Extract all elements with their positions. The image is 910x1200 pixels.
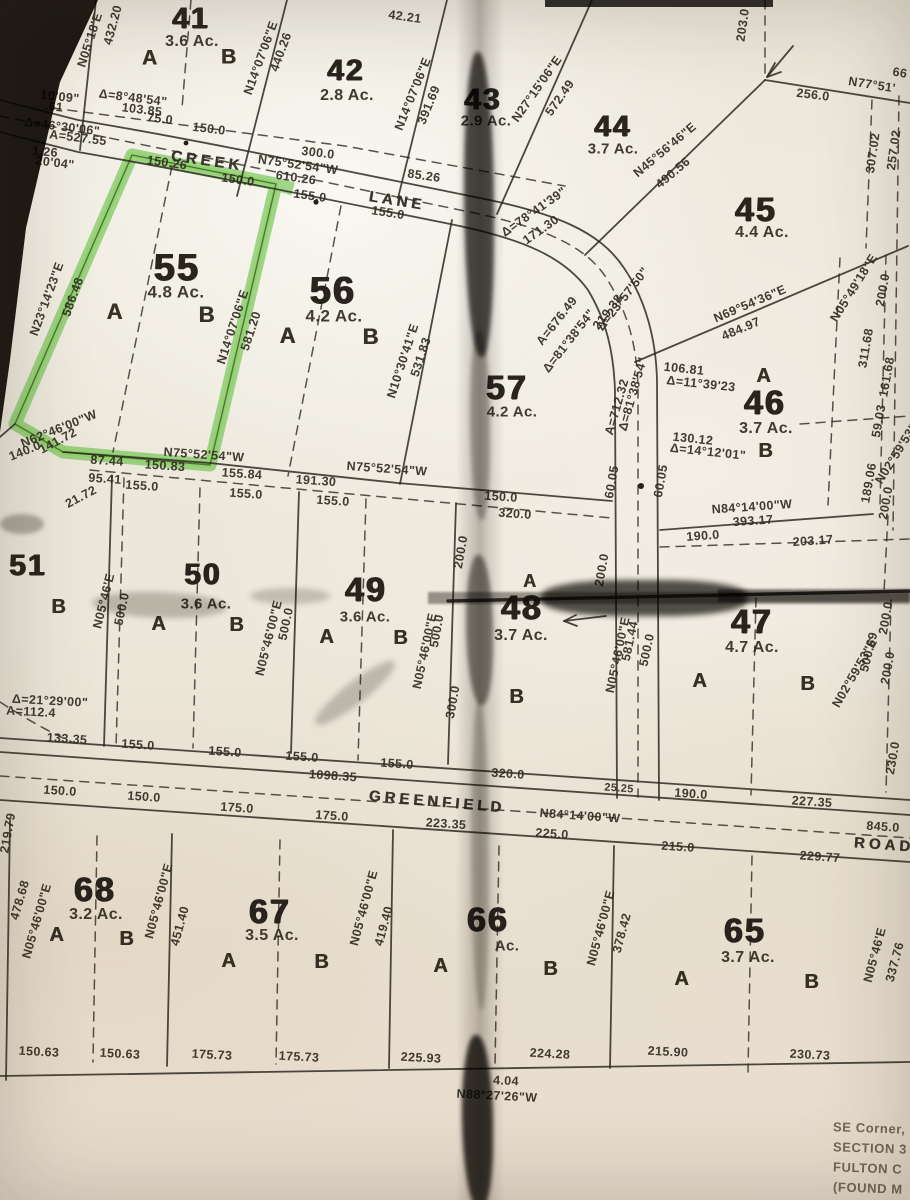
map-label: 845.0	[866, 820, 900, 835]
map-label: N84°14'00"W	[539, 807, 621, 825]
map-label: 200.0	[879, 651, 897, 686]
map-label: 3.7 Ac.	[739, 421, 793, 437]
lot-section-letter: B	[804, 972, 819, 992]
map-label: 3.7 Ac.	[494, 628, 548, 644]
map-label: 190.0	[686, 529, 720, 544]
lot-number-43: 43	[464, 85, 501, 115]
map-label: 4.4 Ac.	[735, 225, 789, 241]
map-label: 155.0	[285, 750, 319, 765]
lot-section-letter: A	[692, 671, 707, 691]
map-label: 175.73	[278, 1050, 319, 1065]
lot-number-51: 51	[9, 551, 46, 581]
map-label: 337.76	[884, 941, 907, 983]
lot-section-letter: A	[142, 48, 158, 69]
map-label: 225.0	[535, 827, 569, 842]
map-label: 42.21	[388, 8, 423, 25]
map-label: 230.73	[789, 1048, 830, 1063]
map-label: N88°27'26"W	[456, 1088, 537, 1105]
lot-number-41: 41	[172, 4, 209, 34]
map-label: 150.0	[221, 171, 256, 188]
map-label: 155.84	[221, 466, 262, 481]
lot-number-47: 47	[731, 605, 773, 639]
lot-number-42: 42	[327, 56, 364, 86]
map-label: 227.35	[791, 794, 832, 809]
plat-map-photo: N05°18'E432.20413.6 Ac.ABN14°07'06"E440.…	[0, 0, 910, 1200]
map-label: 203.17	[792, 533, 833, 548]
map-label: 155.0	[380, 757, 414, 772]
lot-section-letter: B	[363, 326, 380, 348]
map-label: 4.8 Ac.	[148, 284, 205, 301]
map-label: 257.02	[885, 129, 903, 171]
labels-layer: N05°18'E432.20413.6 Ac.ABN14°07'06"E440.…	[0, 0, 910, 1200]
map-label: 150.0	[192, 121, 227, 137]
map-label: 3.7 Ac.	[588, 142, 639, 157]
map-label: 189.06	[859, 462, 878, 504]
map-label: 311.68	[856, 327, 875, 369]
lot-section-letter: B	[119, 929, 134, 949]
map-label: 150.0	[43, 784, 77, 799]
map-label: 200.0	[877, 601, 895, 636]
lot-section-letter: B	[314, 952, 329, 972]
map-label: 320.0	[498, 507, 532, 522]
map-label: N05°46'00"E	[143, 862, 175, 940]
map-label: N05°49'18"E	[828, 252, 880, 324]
map-label: 3.6 Ac.	[340, 610, 391, 625]
map-label: 75.0	[146, 111, 173, 127]
map-label: 307.02	[864, 132, 882, 174]
lot-section-letter: A	[280, 325, 297, 347]
lot-number-68: 68	[74, 873, 116, 907]
map-label: 150.0	[484, 490, 518, 505]
map-label: 223.35	[425, 816, 466, 831]
map-label: 150.0	[127, 790, 161, 805]
lot-section-letter: B	[51, 597, 66, 617]
map-label: 320.0	[491, 767, 525, 782]
map-label: 3.5 Ac.	[245, 928, 299, 944]
map-label: 21.72	[63, 484, 98, 511]
map-label: 500.69	[858, 631, 880, 673]
lot-section-letter: A	[433, 956, 448, 976]
map-label: 451.40	[169, 905, 192, 947]
map-label: Δ=14°12'01"	[669, 442, 746, 462]
lot-section-letter: B	[229, 615, 244, 635]
map-label: 200.0	[877, 486, 895, 521]
map-label: .61	[44, 100, 64, 114]
corner-note-line: SE Corner,	[833, 1120, 906, 1136]
map-label: 150.63	[18, 1045, 59, 1060]
map-label: 161.68	[877, 356, 896, 398]
map-label: 229.77	[799, 849, 840, 864]
lot-number-65: 65	[724, 914, 766, 948]
corner-note-line: SECTION 3	[833, 1140, 907, 1156]
map-label: 300.0	[444, 685, 462, 720]
map-label: 175.0	[315, 809, 349, 824]
map-label: 378.42	[611, 912, 634, 954]
lot-section-letter: B	[393, 628, 408, 648]
map-label: Δ=11°39'23	[666, 374, 736, 394]
map-label: 200.0	[593, 553, 611, 588]
map-label: 256.0	[796, 87, 831, 103]
map-label: 4.2 Ac.	[487, 405, 538, 420]
map-label: 60.05	[652, 464, 670, 499]
lot-section-letter: A	[756, 366, 771, 386]
map-label: 85.26	[407, 167, 442, 184]
map-label: 4.7 Ac.	[725, 640, 779, 656]
map-label: 190.0	[674, 787, 708, 802]
map-label: 155.0	[208, 745, 242, 760]
lot-number-55: 55	[154, 249, 200, 287]
map-label: 66	[892, 66, 908, 81]
map-label: 150.63	[99, 1047, 140, 1062]
map-label: 191.30	[295, 473, 336, 488]
map-label: 60.05	[603, 465, 621, 500]
corner-note-line: FULTON C	[833, 1160, 903, 1175]
lot-section-letter: B	[221, 47, 237, 68]
lot-number-66: 66	[467, 903, 509, 937]
lot-section-letter: A	[107, 301, 124, 323]
map-label: 215.0	[661, 840, 695, 855]
lot-section-letter: A	[523, 572, 537, 590]
lot-section-letter: A	[319, 627, 334, 647]
map-label: 224.28	[529, 1047, 570, 1062]
lot-section-letter: A	[151, 614, 166, 634]
map-label: 155.0	[316, 494, 350, 509]
map-label: 3.7 Ac.	[721, 950, 775, 966]
lot-section-letter: B	[543, 959, 558, 979]
corner-note-line: (FOUND M	[833, 1180, 903, 1195]
map-label: 432.20	[102, 4, 125, 46]
map-label: 20'04"	[35, 154, 75, 171]
map-label: 155.0	[371, 204, 406, 222]
lot-section-letter: B	[800, 674, 815, 694]
map-label: 4.04	[493, 1074, 520, 1088]
map-label: 500.0	[112, 591, 131, 626]
map-label: 219.79	[0, 812, 18, 854]
lot-section-letter: A	[221, 951, 236, 971]
lot-number-48: 48	[501, 591, 543, 625]
map-label: 225.93	[400, 1051, 441, 1066]
map-label: N75°52'54"W	[346, 460, 428, 478]
lot-number-49: 49	[345, 573, 387, 607]
map-label: N23°14'23"E	[28, 261, 66, 338]
map-label: 2.8 Ac.	[320, 88, 374, 104]
map-label: N05°46'00"E	[411, 612, 439, 690]
map-label: Ac.	[495, 939, 520, 954]
map-label: 393.17	[732, 513, 773, 528]
map-label: 175.73	[191, 1048, 232, 1063]
map-label: 478.68	[8, 879, 31, 922]
map-label: 419.40	[373, 905, 396, 947]
street-name-greenfield: GREENFIELD	[368, 789, 505, 816]
lot-section-letter: B	[509, 687, 524, 707]
lot-number-57: 57	[486, 371, 528, 405]
map-label: 59.03	[870, 404, 888, 439]
map-label: 155.0	[121, 738, 155, 753]
map-label: 155.0	[293, 187, 328, 204]
map-label: 203.0	[734, 8, 751, 43]
street-name-road: ROAD	[853, 835, 910, 854]
lot-number-45: 45	[735, 193, 777, 227]
map-label: 155.0	[229, 487, 263, 502]
map-label: 1098.35	[309, 768, 358, 784]
map-label: 140.0	[7, 439, 43, 463]
map-label: 500.0	[637, 632, 656, 667]
map-label: 3.6 Ac.	[181, 597, 232, 612]
map-label: A=112.4	[6, 704, 56, 719]
map-label: 3.6 Ac.	[165, 34, 219, 50]
map-label: 25.25	[604, 782, 634, 795]
lot-number-67: 67	[249, 895, 291, 929]
lot-number-44: 44	[594, 112, 631, 142]
map-label: 133.35	[46, 731, 87, 746]
lot-section-letter: A	[674, 969, 689, 989]
lot-section-letter: B	[758, 441, 773, 461]
map-label: 155.0	[125, 479, 159, 494]
map-label: 200.0	[874, 273, 892, 308]
lot-number-56: 56	[310, 272, 356, 310]
map-label: 586.48	[60, 276, 86, 318]
map-label: 150.83	[144, 458, 185, 473]
map-label: 215.90	[647, 1045, 688, 1060]
lot-number-46: 46	[744, 386, 786, 420]
lot-section-letter: A	[49, 925, 64, 945]
map-label: 230.0	[884, 741, 902, 776]
map-label: N05°46'00"E	[585, 889, 617, 967]
map-label: 4.2 Ac.	[306, 308, 363, 325]
lot-number-50: 50	[184, 560, 221, 590]
lot-section-letter: B	[199, 304, 216, 326]
map-label: 3.2 Ac.	[69, 907, 123, 923]
map-label: 2.9 Ac.	[461, 114, 512, 129]
map-label: N77°51'	[848, 75, 897, 95]
map-label: 200.0	[452, 535, 470, 570]
map-label: 87.44	[90, 454, 124, 469]
map-label: 175.0	[220, 801, 254, 816]
